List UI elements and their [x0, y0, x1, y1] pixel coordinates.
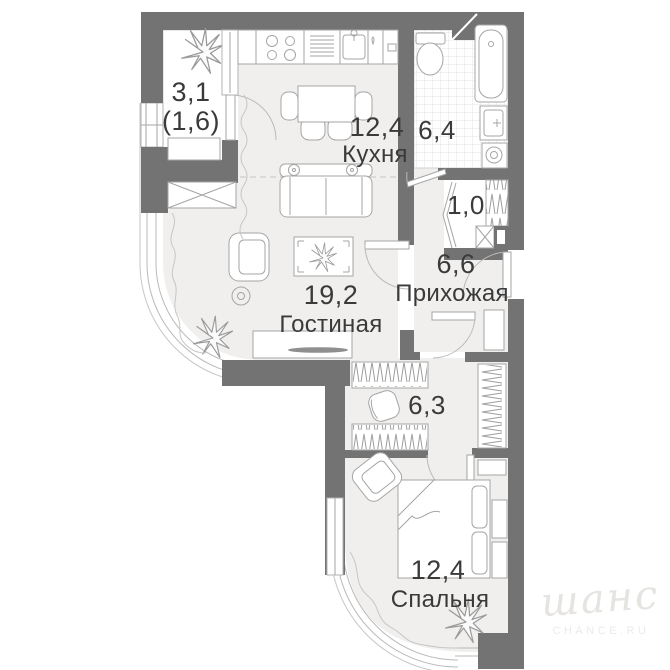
bedroom-area: 12,4	[411, 555, 466, 585]
kitchen-area: 12,4	[350, 112, 405, 142]
wall-balcony-left-bottom	[141, 147, 168, 213]
wall-balcony-left-top	[141, 30, 163, 103]
wall-bedroom-top	[472, 448, 508, 458]
floor-plan-drawing: 3,1 (1,6) 12,4 Кухня 6,4 1,0 6,6 Прихожа…	[0, 0, 670, 670]
hallway-area: 6,6	[436, 249, 475, 279]
washing-machine-icon	[482, 143, 507, 168]
bathtub-icon	[475, 25, 507, 102]
dining-table	[298, 86, 355, 122]
kitchen-counter	[238, 30, 398, 64]
balcony-bench	[168, 138, 220, 160]
balcony-area-2: (1,6)	[162, 106, 220, 136]
nightstand-upper	[492, 500, 507, 538]
hallway-mirror	[484, 310, 504, 350]
wall-living-bottom	[222, 360, 350, 386]
living-room-area: 19,2	[304, 280, 359, 310]
watermark: шанс CHANCE.RU	[539, 572, 660, 637]
bathroom-area: 6,4	[418, 115, 456, 145]
bedroom-name: Спальня	[391, 586, 490, 613]
bathroom-sink-icon	[480, 106, 507, 140]
sofa	[280, 164, 372, 217]
living-room-name: Гостиная	[279, 311, 382, 338]
storage-shelves	[486, 180, 508, 226]
nightstand-lower	[492, 542, 507, 578]
floor-plan: 3,1 (1,6) 12,4 Кухня 6,4 1,0 6,6 Прихожа…	[0, 0, 670, 670]
storage-area: 1,0	[447, 190, 485, 220]
armchair-living	[229, 233, 269, 281]
tv-icon	[288, 347, 348, 353]
wall-right-lower	[508, 347, 524, 647]
corridor-area: 6,3	[408, 390, 446, 420]
bedroom-shelf	[478, 460, 506, 475]
wall-under-balcony	[168, 160, 222, 183]
wall-hallway-bottom-left	[400, 352, 420, 360]
hallway-name: Прихожая	[395, 280, 509, 307]
watermark-site: CHANCE.RU	[553, 625, 650, 637]
coffee-table	[294, 237, 353, 276]
kitchen-name: Кухня	[342, 141, 408, 168]
balcony-door-leaf	[226, 95, 235, 140]
wall-right-upper	[508, 30, 524, 252]
wall-hallway-bottom-right	[465, 352, 508, 362]
wall-bathroom-bottom	[438, 168, 508, 180]
toilet-icon	[416, 33, 445, 75]
wall-right-mid	[508, 297, 524, 347]
wall-bottom-right-block	[478, 633, 524, 669]
balcony-area: 3,1	[171, 77, 210, 107]
wall-portal-pier	[222, 140, 238, 183]
watermark-logo: шанс	[539, 572, 660, 626]
